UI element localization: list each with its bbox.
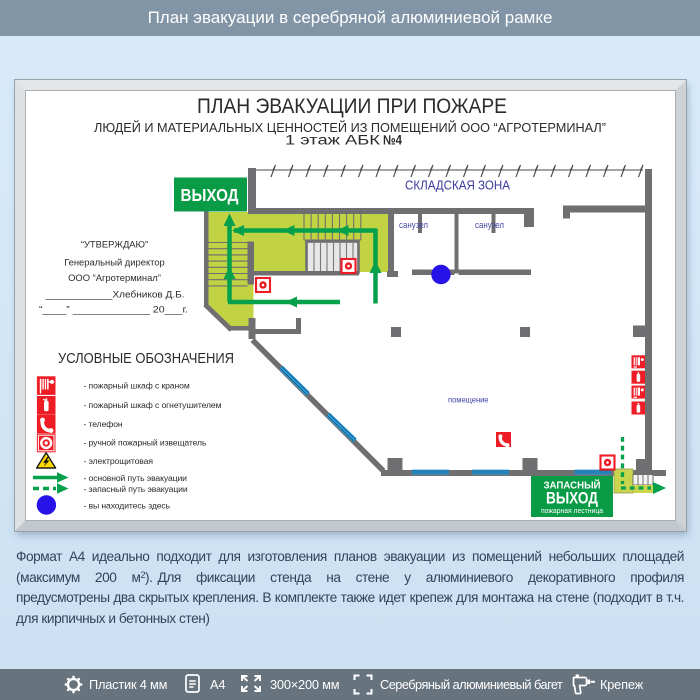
svg-text:- запасный путь эвакуации: - запасный путь эвакуации — [84, 484, 188, 494]
svg-text:- основной путь эвакуации: - основной путь эвакуации — [84, 473, 188, 483]
svg-text:- пожарный шкаф с огнетушителе: - пожарный шкаф с огнетушителем — [84, 400, 222, 410]
svg-text:“УТВЕРЖДАЮ”: “УТВЕРЖДАЮ” — [81, 239, 148, 250]
svg-text:- ручной пожарный извещатель: - ручной пожарный извещатель — [84, 437, 207, 447]
svg-text:- пожарный шкаф с краном: - пожарный шкаф с краном — [84, 380, 190, 390]
svg-text:____________Хлебников Д.Б.: ____________Хлебников Д.Б. — [44, 289, 184, 300]
svg-text:ВЫХОД: ВЫХОД — [181, 185, 239, 205]
svg-text:- вы находитесь здесь: - вы находитесь здесь — [84, 500, 171, 510]
svg-text:ООО “Агротерминал”: ООО “Агротерминал” — [68, 272, 161, 283]
svg-text:санузел: санузел — [399, 220, 428, 230]
svg-text:СКЛАДСКАЯ ЗОНА: СКЛАДСКАЯ ЗОНА — [405, 178, 510, 193]
svg-text:Генеральный директор: Генеральный директор — [64, 257, 165, 268]
svg-text:№4: №4 — [383, 133, 402, 148]
svg-text:ПЛАН ЭВАКУАЦИИ ПРИ ПОЖАРЕ: ПЛАН ЭВАКУАЦИИ ПРИ ПОЖАРЕ — [197, 95, 507, 118]
svg-text:пожарная лестница: пожарная лестница — [541, 506, 604, 515]
svg-text:помещение: помещение — [448, 395, 489, 405]
svg-text:УСЛОВНЫЕ ОБОЗНАЧЕНИЯ: УСЛОВНЫЕ ОБОЗНАЧЕНИЯ — [58, 350, 234, 367]
svg-text:санузел: санузел — [475, 220, 504, 230]
svg-text:“____” _____________ 20___г.: “____” _____________ 20___г. — [39, 304, 188, 315]
svg-text:1 этаж АБК: 1 этаж АБК — [285, 133, 380, 148]
svg-text:ВЫХОД: ВЫХОД — [546, 490, 598, 508]
svg-text:- электрощитовая: - электрощитовая — [84, 456, 154, 466]
svg-text:- телефон: - телефон — [84, 419, 123, 429]
